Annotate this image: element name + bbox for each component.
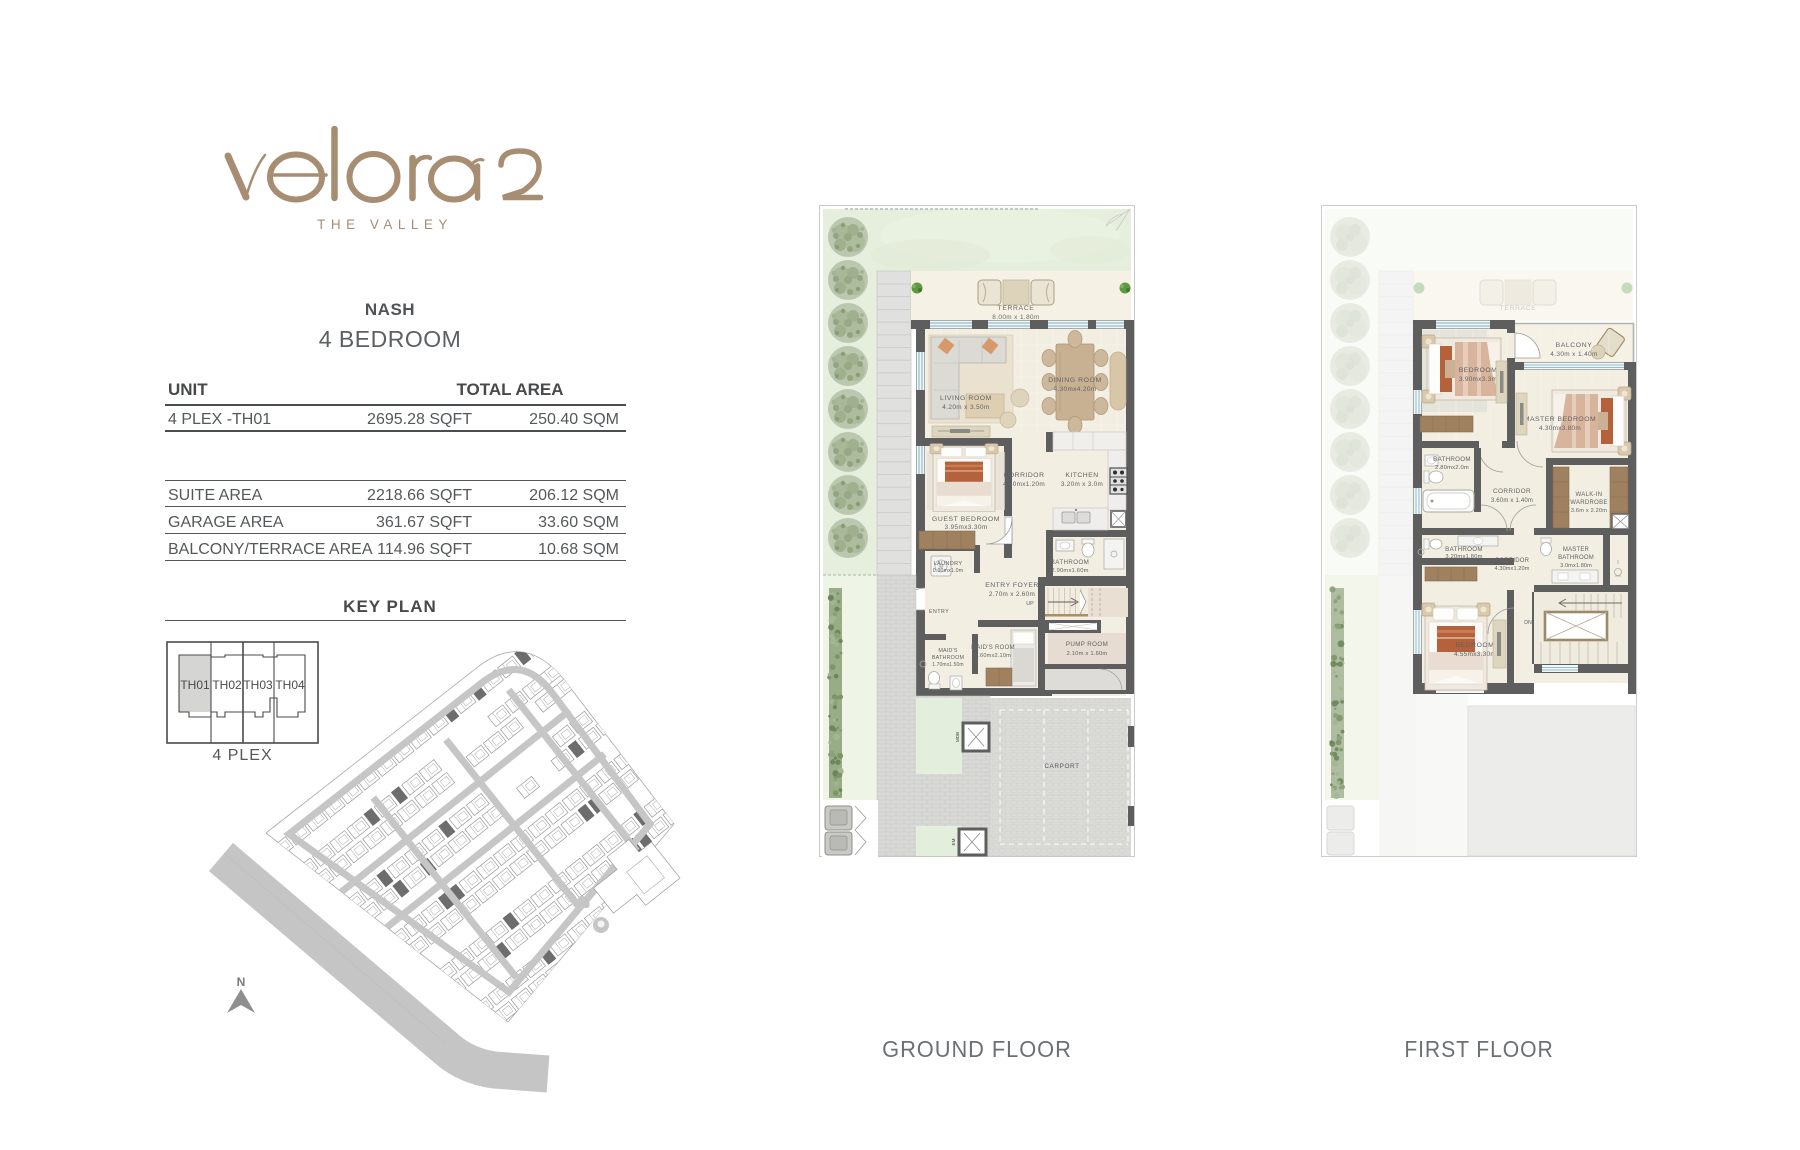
svg-text:BATHROOM: BATHROOM: [1558, 555, 1594, 561]
svg-text:3.6m x 2.20m: 3.6m x 2.20m: [1571, 508, 1607, 514]
svg-text:2.10m x 1.60m: 2.10m x 1.60m: [1067, 651, 1108, 657]
svg-text:4.30mx4.20m: 4.30mx4.20m: [1053, 386, 1096, 393]
svg-text:CARPORT: CARPORT: [1044, 763, 1079, 770]
svg-text:MAID'S ROOM: MAID'S ROOM: [971, 645, 1015, 651]
svg-text:3.20mx1.80m: 3.20mx1.80m: [1445, 554, 1482, 560]
svg-text:N: N: [237, 975, 246, 989]
svg-text:BEDROOM: BEDROOM: [1456, 642, 1495, 649]
svg-text:DINING ROOM: DINING ROOM: [1048, 377, 1101, 384]
svg-text:DN: DN: [1524, 620, 1532, 626]
svg-text:MDB: MDB: [955, 732, 960, 742]
svg-text:4.30mx3.80m: 4.30mx3.80m: [1539, 425, 1581, 432]
svg-text:LIVING ROOM: LIVING ROOM: [940, 395, 992, 402]
svg-text:LAUNDRY: LAUNDRY: [934, 561, 963, 567]
svg-text:KITCHEN: KITCHEN: [1065, 472, 1098, 479]
svg-text:CORRIDOR: CORRIDOR: [1003, 472, 1044, 479]
svg-text:4.30m x 1.40m: 4.30m x 1.40m: [1550, 351, 1597, 358]
svg-text:BATHROOM: BATHROOM: [1445, 546, 1483, 553]
svg-text:WALK-IN: WALK-IN: [1576, 492, 1603, 498]
svg-text:GUEST BEDROOM: GUEST BEDROOM: [932, 516, 1000, 523]
svg-text:3.95mx3.30m: 3.95mx3.30m: [944, 524, 987, 531]
svg-text:2.70m x 2.60m: 2.70m x 2.60m: [989, 591, 1035, 598]
svg-text:2.80mx2.0m: 2.80mx2.0m: [1435, 465, 1469, 471]
svg-text:CORRIDOR: CORRIDOR: [1493, 488, 1531, 495]
svg-text:ENTRY FOYER: ENTRY FOYER: [985, 582, 1039, 589]
svg-text:MASTER: MASTER: [1563, 547, 1590, 553]
svg-text:BEDROOM: BEDROOM: [1459, 367, 1498, 374]
svg-text:0.90mx1.0m: 0.90mx1.0m: [933, 568, 964, 574]
svg-text:BATHROOM: BATHROOM: [1433, 456, 1471, 463]
svg-text:MASTER BEDROOM: MASTER BEDROOM: [1524, 416, 1596, 423]
svg-text:BALCONY: BALCONY: [1556, 342, 1593, 349]
svg-text:PUMP ROOM: PUMP ROOM: [1066, 641, 1108, 648]
svg-text:3.90mx3.3m: 3.90mx3.3m: [1459, 376, 1497, 383]
svg-text:BATHROOM: BATHROOM: [1051, 559, 1090, 566]
svg-text:2.90mx1.60m: 2.90mx1.60m: [1051, 568, 1088, 574]
svg-text:4.55mx3.30m: 4.55mx3.30m: [1454, 651, 1496, 658]
svg-text:TERRACE: TERRACE: [998, 305, 1035, 312]
svg-text:ENTRY: ENTRY: [929, 609, 949, 615]
svg-text:4.20m x 3.50m: 4.20m x 3.50m: [942, 404, 989, 411]
svg-text:3.20m x 3.0m: 3.20m x 3.0m: [1061, 481, 1103, 488]
svg-text:BATHROOM: BATHROOM: [932, 655, 965, 661]
svg-text:4.20mx1.20m: 4.20mx1.20m: [1003, 481, 1045, 488]
svg-text:1.70mx1.50m: 1.70mx1.50m: [932, 662, 963, 668]
svg-text:3.60m x 1.40m: 3.60m x 1.40m: [1491, 498, 1533, 504]
svg-text:MAID'S: MAID'S: [938, 648, 958, 654]
svg-text:2.60mx2.10m: 2.60mx2.10m: [975, 653, 1011, 659]
svg-text:8.00m x 1.80m: 8.00m x 1.80m: [992, 314, 1039, 321]
svg-text:3.0mx1.80m: 3.0mx1.80m: [1560, 563, 1592, 569]
svg-text:WARDROBE: WARDROBE: [1570, 500, 1608, 506]
svg-text:4.30mx1.20m: 4.30mx1.20m: [1495, 566, 1530, 572]
svg-text:TERRACE: TERRACE: [1500, 305, 1537, 312]
svg-text:EM: EM: [951, 838, 956, 845]
svg-text:CORRIDOR: CORRIDOR: [1495, 558, 1530, 564]
svg-text:UP: UP: [1026, 601, 1034, 607]
